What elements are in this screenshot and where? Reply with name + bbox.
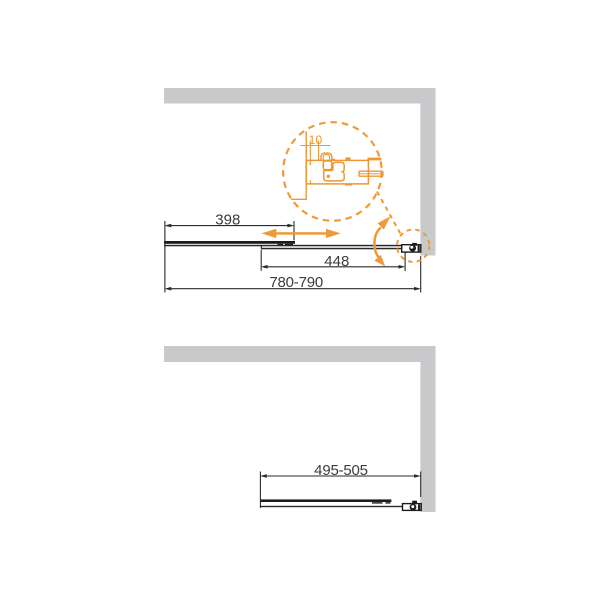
svg-text:780-790: 780-790 [269,274,323,291]
svg-text:10: 10 [309,133,323,147]
svg-text:398: 398 [215,212,240,229]
svg-text:448: 448 [324,253,349,270]
svg-text:495-505: 495-505 [314,462,368,479]
